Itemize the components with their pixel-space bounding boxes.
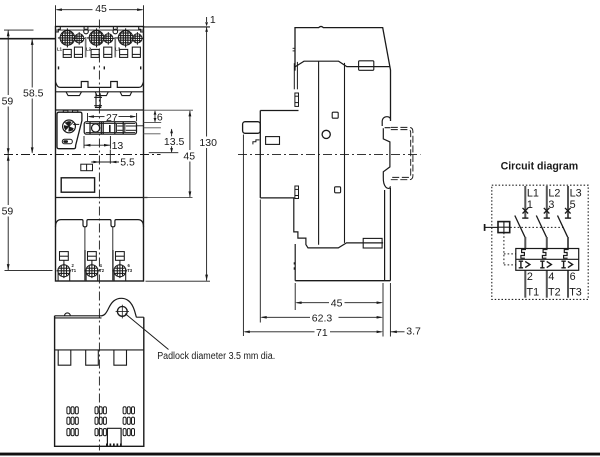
svg-text:T2: T2 — [99, 268, 105, 273]
svg-text:L3: L3 — [115, 47, 121, 52]
svg-text:5: 5 — [570, 199, 576, 211]
svg-text:58.5: 58.5 — [23, 88, 44, 100]
svg-text:45: 45 — [331, 298, 343, 310]
svg-text:13: 13 — [112, 140, 124, 152]
svg-text:3: 3 — [548, 199, 554, 211]
svg-text:6: 6 — [570, 271, 576, 283]
svg-text:L2: L2 — [86, 47, 92, 52]
svg-text:59: 59 — [2, 206, 14, 218]
svg-text:45: 45 — [183, 150, 195, 162]
svg-text:130: 130 — [199, 137, 217, 149]
svg-text:T3: T3 — [127, 268, 133, 273]
svg-text:T1: T1 — [71, 268, 77, 273]
svg-text:6: 6 — [157, 112, 163, 124]
svg-text:13.5: 13.5 — [164, 136, 185, 148]
svg-text:L2: L2 — [548, 187, 560, 199]
svg-text:T3: T3 — [569, 287, 582, 299]
svg-text:T2: T2 — [548, 287, 561, 299]
svg-text:3.7: 3.7 — [406, 325, 421, 337]
svg-text:L3: L3 — [570, 187, 582, 199]
svg-text:27: 27 — [106, 112, 118, 124]
svg-text:L1: L1 — [527, 187, 539, 199]
svg-text:2: 2 — [527, 271, 533, 283]
svg-text:71: 71 — [316, 327, 328, 339]
svg-text:Padlock diameter 3.5 mm dia.: Padlock diameter 3.5 mm dia. — [157, 351, 275, 362]
svg-text:T1: T1 — [527, 287, 540, 299]
svg-text:1: 1 — [210, 14, 216, 26]
svg-text:62.3: 62.3 — [312, 312, 333, 324]
svg-text:45: 45 — [95, 3, 107, 15]
svg-text:Circuit diagram: Circuit diagram — [501, 160, 579, 172]
svg-text:L1: L1 — [57, 47, 63, 52]
svg-text:4: 4 — [548, 271, 554, 283]
svg-text:5.5: 5.5 — [120, 157, 135, 169]
svg-text:1: 1 — [527, 199, 533, 211]
svg-text:59: 59 — [2, 96, 14, 108]
